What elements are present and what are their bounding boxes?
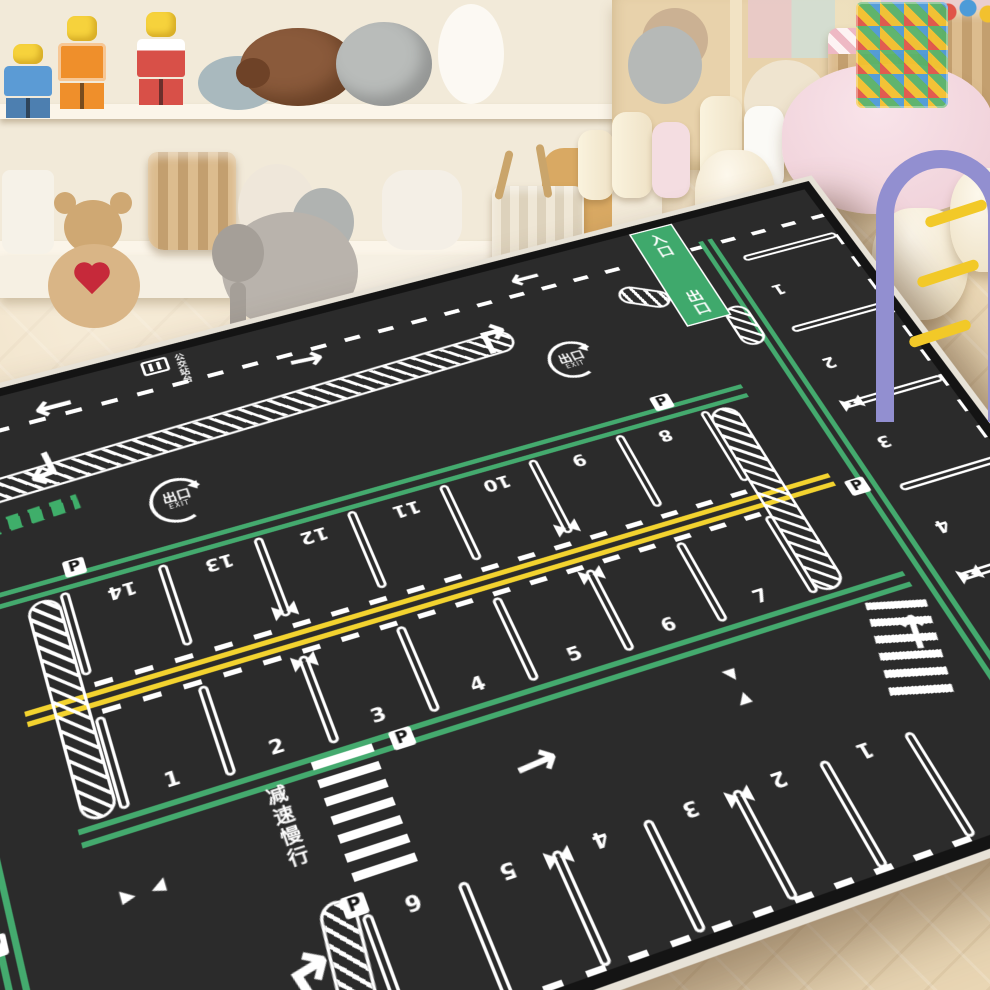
no-parking-x-mark: [290, 651, 319, 673]
stall-number: 2: [766, 767, 791, 791]
lego-legs: [6, 98, 50, 118]
stall-number: 3: [678, 796, 702, 820]
stall-number: 1: [162, 768, 183, 792]
stall-divider: [742, 232, 838, 262]
arch-rung: [916, 258, 980, 288]
fork-arrow: [680, 658, 765, 725]
teddy-bear-with-heart: [40, 200, 152, 336]
stall-divider: [903, 731, 977, 839]
lego-legs: [139, 79, 183, 105]
exit-label: 出口: [679, 288, 716, 318]
stall-number: 1: [769, 281, 789, 296]
no-parking-x-mark: [577, 565, 606, 585]
trident-arrow: [99, 836, 179, 916]
lego-head: [13, 44, 43, 64]
green-comb-marking: [0, 494, 81, 568]
stall-divider: [898, 454, 990, 491]
milk-bottle: [612, 112, 652, 198]
stall-divider: [438, 484, 482, 561]
parking-p-sign: P: [62, 556, 88, 578]
arch-rung: [924, 198, 988, 228]
no-parking-x-mark: [723, 784, 755, 808]
exit-roundel-icon: 出口 EXIT: [540, 336, 606, 383]
stall-divider: [491, 596, 540, 682]
no-parking-x-mark: [271, 600, 299, 621]
stall-divider: [457, 881, 516, 990]
pillow-cat-white: [382, 170, 462, 250]
slow-down-label: 减速慢行: [259, 782, 316, 873]
lego-body: [137, 39, 185, 77]
stall-divider: [395, 625, 441, 713]
exit-roundel-icon: 出口 EXIT: [143, 472, 213, 530]
milk-bottle: [578, 130, 614, 200]
climbing-arch-toy: [876, 150, 990, 422]
stall-number: 3: [368, 704, 390, 726]
no-parking-x-mark: [542, 845, 574, 870]
stall-number: 3: [872, 432, 894, 450]
stall-number: 4: [467, 674, 489, 696]
no-parking-x-mark: [553, 518, 581, 537]
stall-number: 14: [105, 578, 138, 602]
arrow-head: [114, 892, 136, 908]
stall-number: 6: [401, 889, 425, 915]
lego-body: [4, 66, 52, 96]
teddy-ear: [110, 192, 132, 214]
stall-divider: [347, 510, 389, 589]
crosswalk: [311, 743, 422, 892]
building-blocks: [856, 2, 948, 108]
lego-body: [58, 43, 106, 81]
plush-bear-in-cubby: [628, 26, 702, 104]
bus-stop: 公交站台: [140, 352, 196, 394]
tulle-decor: [438, 4, 504, 104]
stall-number: 2: [266, 736, 287, 759]
bus-stop-label: 公交站台: [170, 352, 195, 385]
stall-divider: [675, 541, 729, 623]
lego-head: [67, 16, 97, 41]
stall-number: 12: [297, 524, 330, 547]
plush-bear-gray: [336, 22, 432, 106]
stall-number: 4: [931, 516, 954, 535]
entrance-exit-band: 入口 出口: [629, 224, 732, 327]
stall-divider: [818, 759, 889, 869]
lego-head: [146, 12, 176, 37]
stall-number: 7: [750, 587, 773, 607]
stall-number: 6: [658, 615, 680, 636]
stall-number: 13: [202, 550, 235, 574]
stall-number: 4: [588, 826, 612, 851]
left-arrow: ←: [503, 262, 547, 295]
stall-divider: [157, 564, 193, 647]
elephant-ear: [212, 224, 264, 282]
stall-divider: [790, 300, 889, 332]
stall-number: 1: [852, 738, 877, 761]
arch-rung: [908, 318, 972, 348]
milk-bottle-pink: [652, 122, 690, 198]
lego-legs: [60, 83, 104, 109]
stall-number: 2: [819, 354, 840, 370]
stall-number: 9: [569, 451, 589, 469]
bus-stop-icon: [140, 356, 171, 376]
stall-number: 11: [390, 498, 423, 520]
entrance-label: 入口: [643, 232, 679, 260]
left-arrow: ←: [29, 384, 79, 428]
playroom-scene: 入口 出口 出口 EXIT 出口 EXIT 公交站台 减速慢行 ← → ← ↱ …: [0, 0, 990, 990]
stall-divider: [642, 818, 707, 934]
lego-minifig-orange: [54, 16, 110, 116]
stall-number: 5: [496, 857, 520, 882]
stall-divider: [197, 684, 237, 777]
arrow-head: [740, 692, 754, 708]
stall-number: 8: [655, 426, 676, 443]
stall-number: 10: [480, 472, 513, 494]
stall-divider: [614, 434, 663, 508]
plush-boar-snout: [236, 58, 270, 88]
right-arrow: →: [503, 732, 570, 794]
teddy-ear: [54, 192, 76, 214]
stall-number: 5: [564, 644, 586, 665]
lego-minifig-blue: [8, 44, 48, 118]
lego-minifig-red: [132, 12, 190, 116]
